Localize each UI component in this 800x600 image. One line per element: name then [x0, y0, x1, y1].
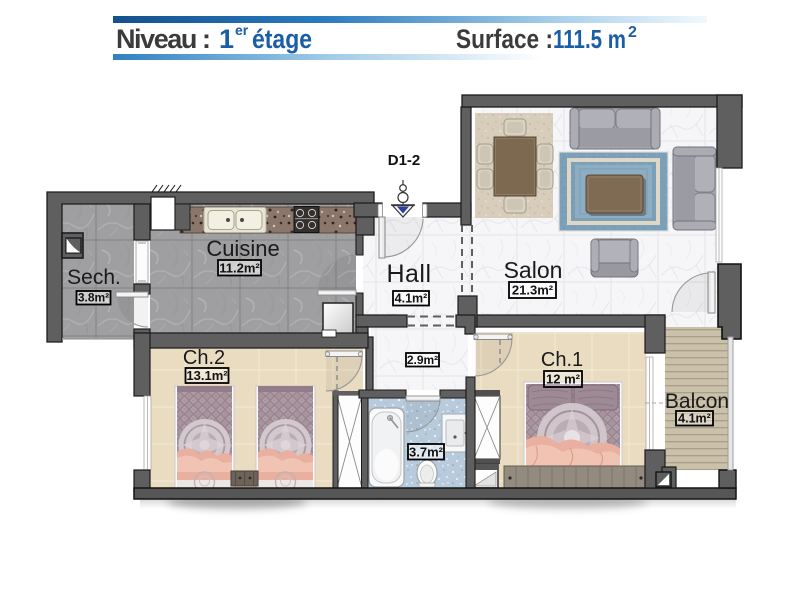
svg-text:3.7m²: 3.7m² — [409, 445, 444, 460]
svg-text:Hall: Hall — [386, 260, 431, 288]
svg-text:2.9m²: 2.9m² — [407, 353, 438, 367]
svg-text:Niveau :: Niveau : — [116, 24, 211, 54]
svg-text:Cuisine: Cuisine — [206, 236, 279, 261]
svg-text:Sech.: Sech. — [67, 266, 121, 289]
svg-text:Ch.2: Ch.2 — [183, 347, 225, 369]
svg-text:2: 2 — [628, 24, 637, 41]
svg-text:11.2m²: 11.2m² — [219, 261, 260, 276]
svg-text:Balcon: Balcon — [665, 390, 729, 413]
svg-text:D1-2: D1-2 — [388, 152, 421, 169]
svg-text:Surface :: Surface : — [456, 24, 553, 54]
svg-text:12 m²: 12 m² — [546, 372, 581, 387]
svg-text:Salon: Salon — [504, 257, 563, 283]
svg-text:3.8m²: 3.8m² — [78, 291, 109, 305]
svg-text:4.1m²: 4.1m² — [678, 412, 711, 426]
svg-text:1: 1 — [219, 24, 234, 54]
svg-text:étage: étage — [252, 24, 312, 54]
svg-text:13.1m²: 13.1m² — [186, 368, 228, 383]
svg-text:21.3m²: 21.3m² — [512, 283, 554, 298]
svg-text:Ch.1: Ch.1 — [541, 349, 583, 371]
svg-text:er: er — [235, 22, 249, 38]
svg-text:4.1m²: 4.1m² — [395, 292, 428, 306]
svg-text:111.5 m: 111.5 m — [553, 24, 626, 54]
